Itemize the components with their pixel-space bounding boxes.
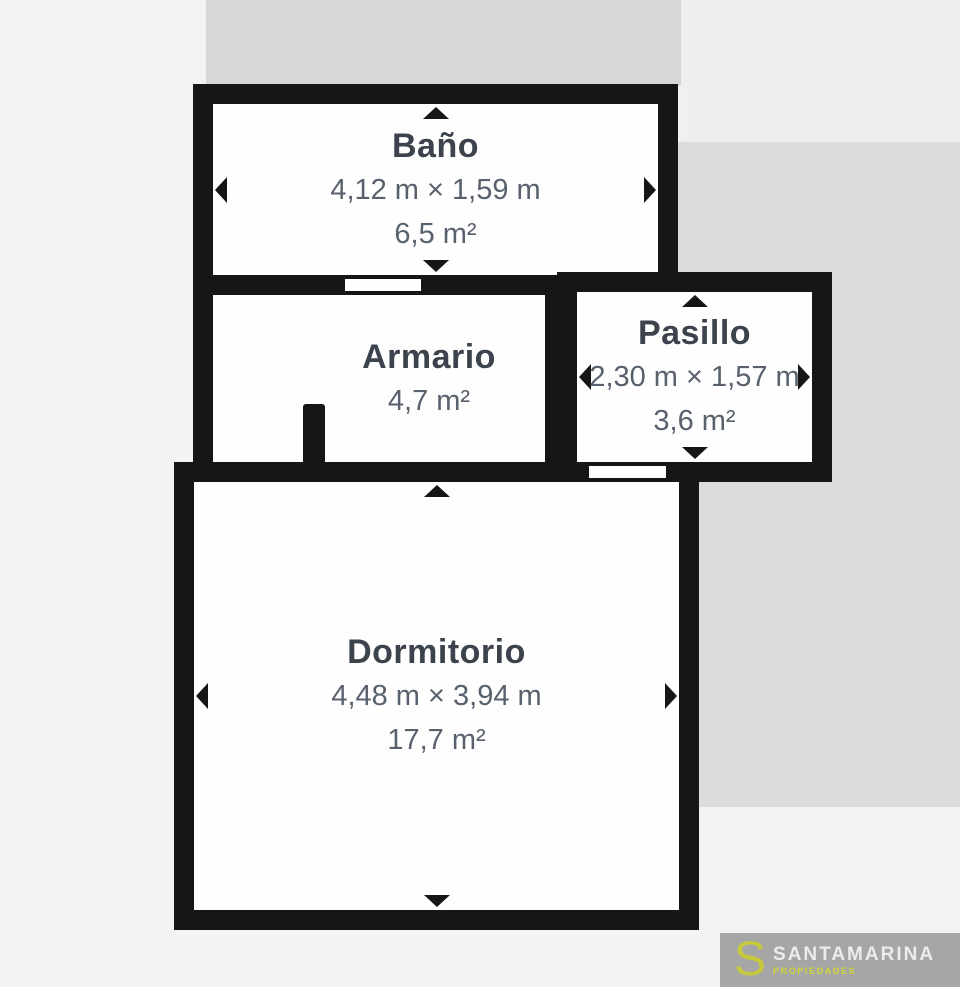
room-dimensions: 4,48 m × 3,94 m — [331, 674, 541, 718]
room-label: Dormitorio 4,48 m × 3,94 m 17,7 m² — [194, 482, 679, 910]
brand-monogram: S — [734, 938, 766, 982]
room-armario: Armario 4,7 m² — [193, 275, 565, 482]
brand-text: SANTAMARINA PROPIEDADES — [773, 945, 935, 976]
room-name: Dormitorio — [347, 630, 526, 674]
room-bano: Baño 4,12 m × 1,59 m 6,5 m² — [193, 84, 678, 295]
floorplan-canvas: Baño 4,12 m × 1,59 m 6,5 m² Armario 4,7 … — [0, 0, 960, 987]
brand-watermark: S SANTAMARINA PROPIEDADES — [720, 933, 960, 987]
room-pasillo: Pasillo 2,30 m × 1,57 m 3,6 m² — [557, 272, 832, 482]
room-name: Armario — [362, 335, 496, 379]
room-name: Baño — [392, 124, 479, 168]
room-dormitorio: Dormitorio 4,48 m × 3,94 m 17,7 m² — [174, 462, 699, 930]
room-label: Baño 4,12 m × 1,59 m 6,5 m² — [213, 104, 658, 275]
brand-tagline: PROPIEDADES — [773, 966, 935, 976]
room-area: 3,6 m² — [653, 399, 735, 443]
interior-wall-partition — [303, 404, 325, 482]
room-area: 4,7 m² — [388, 379, 470, 423]
room-label: Armario 4,7 m² — [213, 295, 545, 462]
background-block-top-right — [681, 0, 960, 142]
door-opening-bano-armario — [345, 279, 421, 291]
room-dimensions: 2,30 m × 1,57 m — [589, 355, 799, 399]
room-label: Pasillo 2,30 m × 1,57 m 3,6 m² — [577, 292, 812, 462]
door-opening-pasillo-dormitorio — [589, 466, 666, 478]
room-area: 17,7 m² — [387, 718, 485, 762]
room-dimensions: 4,12 m × 1,59 m — [330, 168, 540, 212]
room-name: Pasillo — [638, 311, 751, 355]
brand-name: SANTAMARINA — [773, 945, 935, 965]
room-area: 6,5 m² — [394, 212, 476, 256]
background-block-top — [206, 0, 681, 86]
